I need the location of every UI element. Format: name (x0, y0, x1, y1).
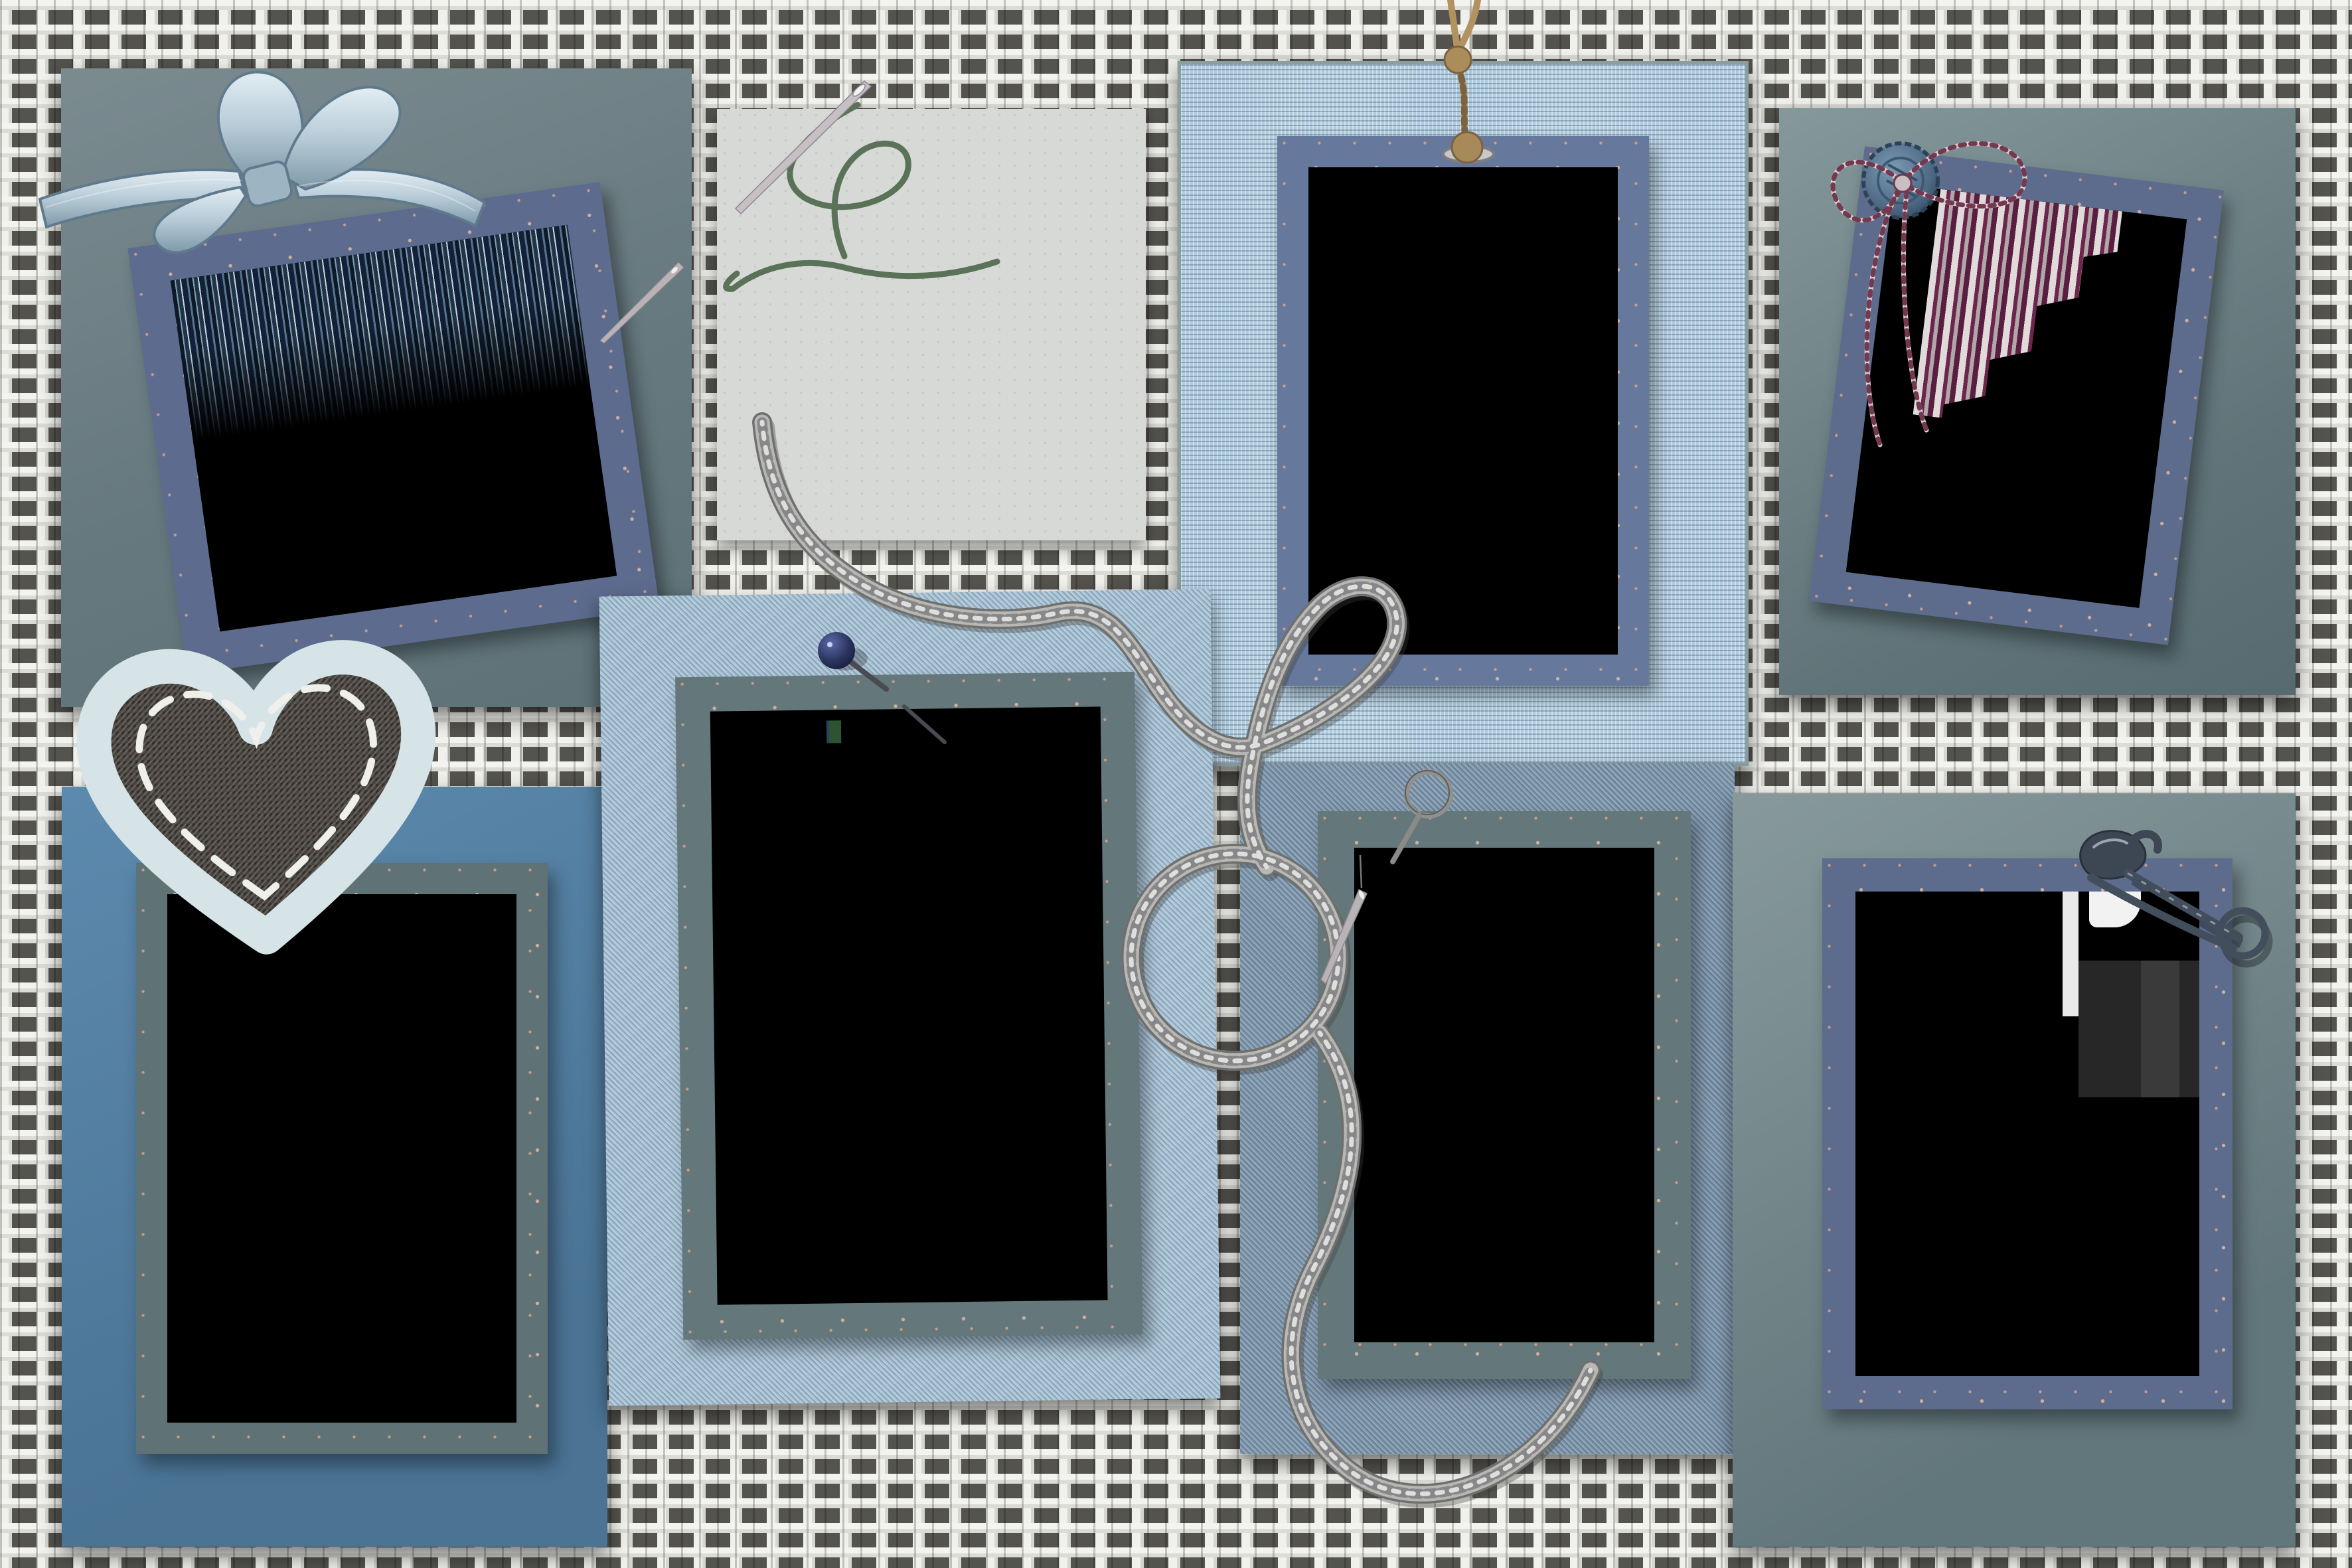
photo-slot-1[interactable] (171, 225, 617, 632)
photo-frame-bottom-right (1822, 858, 2233, 1409)
photo-frame-bottom-left (136, 863, 548, 1454)
photo-slot-4[interactable] (710, 706, 1108, 1304)
photo-slot-5[interactable] (167, 894, 516, 1423)
photo-slot-6[interactable] (1354, 848, 1654, 1342)
mat-top-right (1779, 108, 2296, 695)
paper-note (717, 109, 1146, 540)
photo-glitch-block (2063, 892, 2078, 1016)
photo-slot-7[interactable] (1855, 892, 2199, 1376)
mat-bottom-center (1240, 763, 1735, 1454)
photo-frame-top-left (127, 182, 659, 674)
photo-glitch-stripes (1913, 189, 2123, 437)
mat-top-left (61, 68, 692, 707)
photo-frame-bottom-center (1318, 811, 1691, 1379)
photo-glitch-stripes (171, 225, 590, 442)
photo-glitch-block (2078, 961, 2199, 1097)
photo-frame-center (675, 672, 1142, 1340)
scrapbook-collage (0, 0, 2352, 1568)
mat-center (599, 589, 1221, 1405)
photo-glitch-block (2141, 961, 2179, 1097)
mat-bottom-right (1733, 793, 2296, 1547)
photo-slot-3[interactable] (1846, 183, 2187, 608)
photo-frame-top-right (1809, 146, 2224, 645)
mat-hanging-linen (1178, 61, 1749, 766)
photo-slot-2[interactable] (1308, 167, 1618, 655)
photo-frame-hanging (1277, 136, 1649, 686)
photo-glitch-block (826, 720, 841, 743)
photo-glitch-block (2089, 892, 2141, 927)
mat-bottom-left (62, 787, 607, 1547)
